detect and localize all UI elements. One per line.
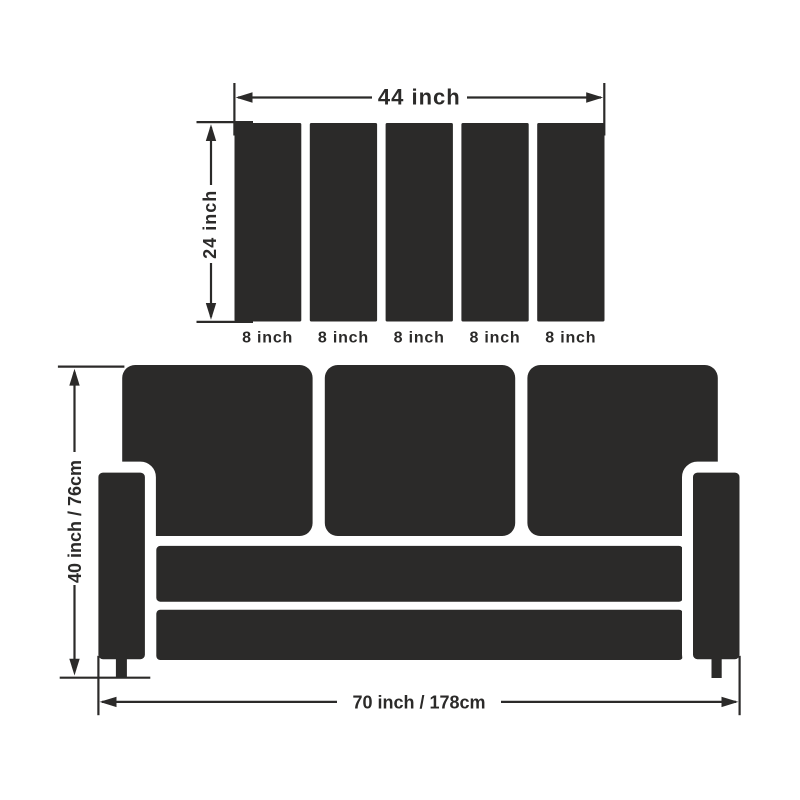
svg-text:70 inch / 178cm: 70 inch / 178cm bbox=[352, 693, 485, 713]
svg-text:8 inch: 8 inch bbox=[242, 330, 293, 347]
svg-text:44 inch: 44 inch bbox=[378, 85, 461, 110]
svg-text:8 inch: 8 inch bbox=[545, 330, 596, 347]
svg-text:8 inch: 8 inch bbox=[469, 330, 520, 347]
svg-text:24 inch: 24 inch bbox=[200, 190, 220, 259]
svg-text:8 inch: 8 inch bbox=[394, 330, 445, 347]
svg-text:8 inch: 8 inch bbox=[318, 330, 369, 347]
svg-text:40 inch / 76cm: 40 inch / 76cm bbox=[65, 460, 85, 583]
